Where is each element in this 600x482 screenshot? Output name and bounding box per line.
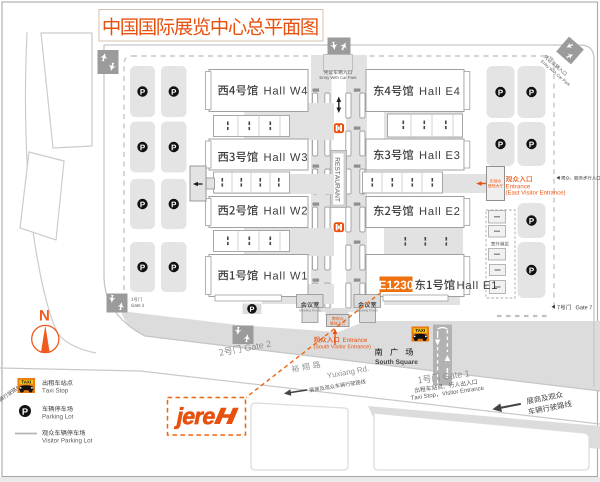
svg-text:TAXI: TAXI: [21, 380, 31, 385]
svg-text:TAXI: TAXI: [415, 328, 425, 333]
